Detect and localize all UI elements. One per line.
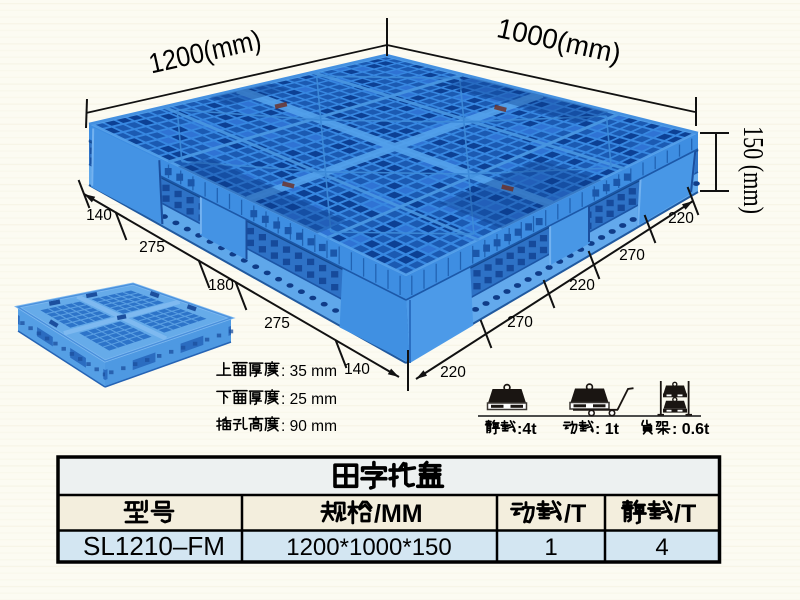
- svg-text:270: 270: [619, 247, 645, 264]
- svg-text:: 25 mm: : 25 mm: [281, 391, 337, 408]
- svg-text:150 (mm): 150 (mm): [737, 126, 768, 214]
- svg-text:4: 4: [655, 534, 668, 561]
- svg-text:/T: /T: [674, 500, 696, 528]
- svg-text:/T: /T: [564, 500, 586, 528]
- svg-text:140: 140: [344, 361, 370, 378]
- svg-text:1200*1000*150: 1200*1000*150: [286, 534, 452, 561]
- svg-text:: 1t: : 1t: [595, 421, 620, 438]
- svg-text:275: 275: [264, 315, 290, 332]
- svg-text:270: 270: [507, 314, 533, 331]
- svg-text:: 35 mm: : 35 mm: [281, 363, 337, 380]
- svg-text:1: 1: [544, 534, 557, 561]
- svg-text:: 90 mm: : 90 mm: [281, 418, 337, 435]
- svg-text:220: 220: [440, 364, 466, 381]
- svg-text:: 0.6t: : 0.6t: [672, 421, 710, 438]
- svg-text:220: 220: [569, 277, 595, 294]
- svg-text:SL1210–FM: SL1210–FM: [83, 531, 225, 561]
- svg-text:180: 180: [208, 277, 234, 294]
- svg-text:/MM: /MM: [374, 500, 423, 528]
- svg-text:140: 140: [86, 207, 112, 224]
- svg-text:275: 275: [139, 239, 165, 256]
- svg-text::4t: :4t: [517, 421, 537, 438]
- svg-text:220: 220: [668, 210, 694, 227]
